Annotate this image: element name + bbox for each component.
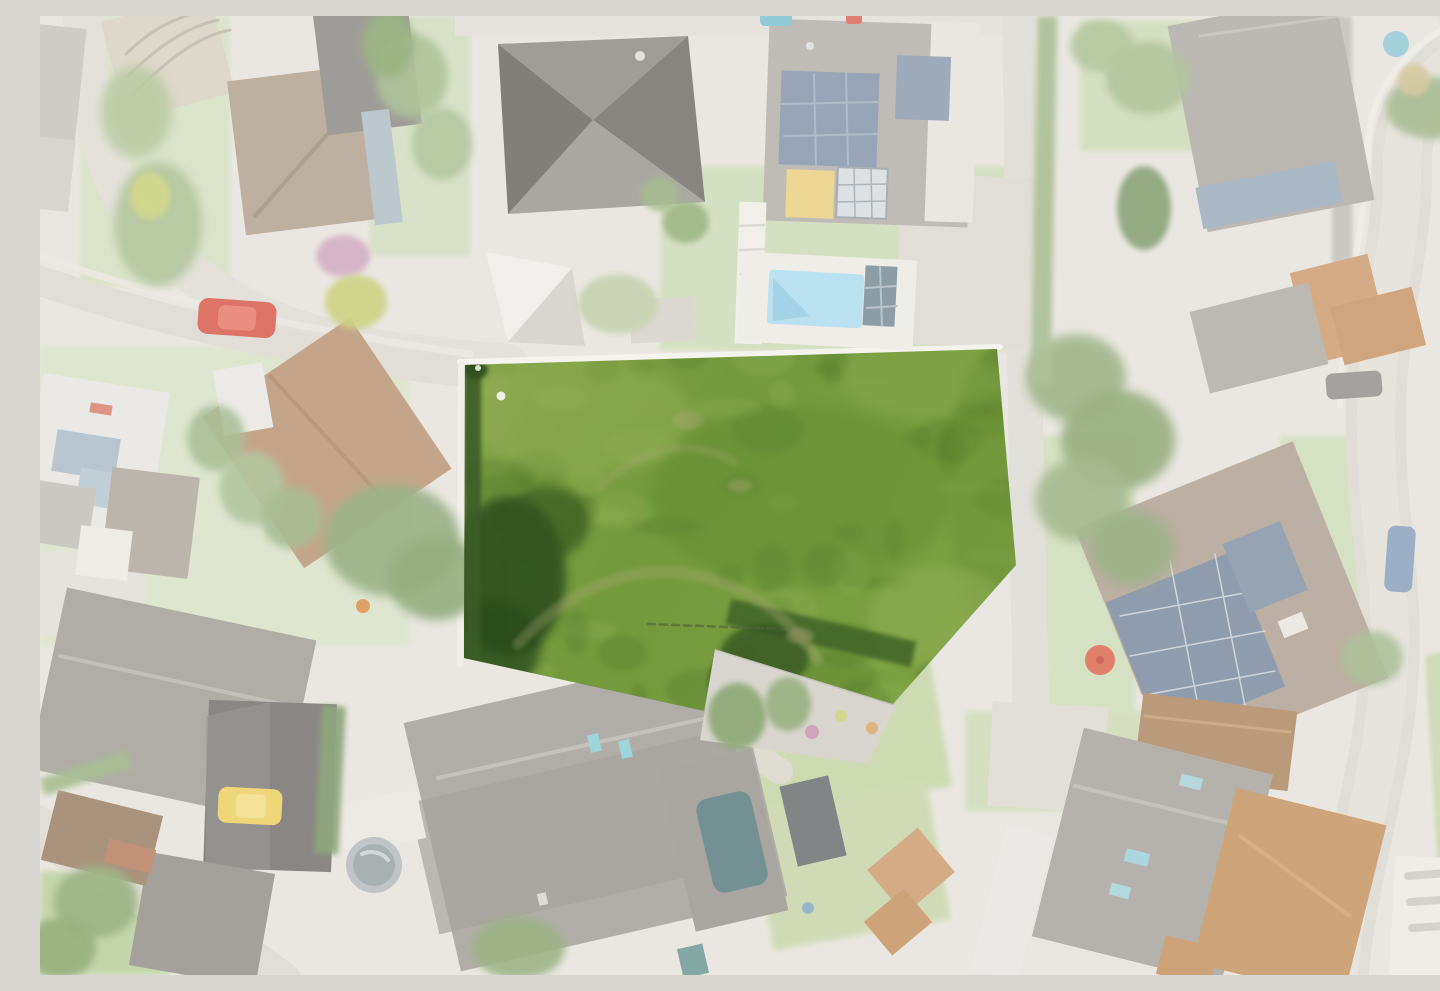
marker-white-dot [497,392,506,401]
worn-patch-2 [728,479,752,493]
marker-white-dot-2 [475,365,481,371]
parcel-light-topleft [470,356,690,476]
screenshot-root: Aerial drone photo of a residential neig… [40,16,1440,975]
hedge-left-edge [464,360,481,662]
worn-patch-3 [786,628,814,644]
tree-shadow-3 [506,486,590,558]
aerial-photo-canvas [40,16,1440,975]
grass-mottle [770,380,795,411]
grass-mottle [598,636,647,671]
grass-mottle [589,492,652,529]
grass-mottle [564,611,589,654]
worn-patch-1 [672,411,704,429]
parcel-deep-center [650,406,950,586]
